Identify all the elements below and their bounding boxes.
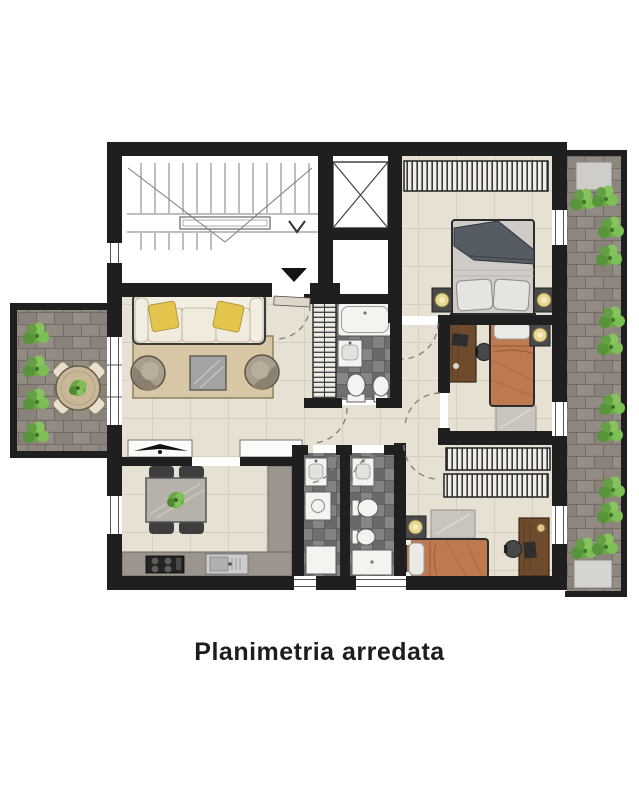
bathroom-sink <box>338 340 362 367</box>
shower-tray <box>352 550 392 575</box>
desk <box>448 322 476 382</box>
window <box>552 402 567 436</box>
nightstand <box>432 288 452 312</box>
wardrobe <box>404 161 548 191</box>
sofa <box>133 294 265 344</box>
left-terrace <box>10 303 122 458</box>
dining-chair <box>149 521 174 534</box>
floor-plan-page: Planimetria arredata <box>0 0 639 800</box>
laundry-cabinet <box>306 546 336 574</box>
stair-direction-arrow <box>289 221 305 232</box>
coffee-table <box>190 356 226 390</box>
elevator <box>333 162 388 228</box>
sofa-pillow <box>148 301 179 332</box>
toilet <box>347 374 365 402</box>
desk <box>519 518 549 576</box>
tv-console <box>128 440 192 457</box>
wardrobe <box>444 474 548 497</box>
nightstand <box>405 516 426 539</box>
dining-chair <box>179 466 204 479</box>
storage-box <box>574 560 612 588</box>
nightstand <box>534 288 554 312</box>
window <box>107 243 122 263</box>
single-bed <box>488 316 536 406</box>
stove <box>146 556 184 573</box>
sofa-pillow <box>212 301 244 333</box>
dining-chair <box>179 521 204 534</box>
window <box>552 506 567 544</box>
double-bed <box>450 220 536 319</box>
toilet <box>352 499 378 517</box>
window-living-terrace <box>107 337 122 425</box>
window <box>356 576 406 590</box>
window <box>294 576 316 590</box>
single-bed <box>402 538 488 579</box>
dining-chair <box>149 466 174 479</box>
laptop <box>451 333 469 347</box>
corridor-nook-floor <box>402 325 440 445</box>
plan-caption: Planimetria arredata <box>0 638 639 667</box>
nightstand <box>530 324 550 346</box>
armchair <box>245 355 279 389</box>
washing-machine <box>305 492 331 520</box>
window <box>552 210 567 245</box>
bidet <box>352 529 375 545</box>
right-terrace <box>565 150 627 597</box>
bed-pillow <box>494 323 530 339</box>
wardrobe <box>446 448 550 470</box>
window <box>107 496 122 534</box>
kitchen-sink <box>206 554 248 574</box>
bed-pillow <box>456 279 493 311</box>
terrace-table-set <box>51 360 106 415</box>
armchair <box>131 356 165 390</box>
floor-plan-image <box>0 0 639 800</box>
bathtub <box>338 303 392 336</box>
bed-pillow <box>409 543 424 575</box>
laptop <box>523 541 537 558</box>
entry-door-leaf <box>274 296 310 307</box>
bathroom2-sink <box>352 458 374 486</box>
entrance-arrow-icon <box>281 268 307 282</box>
desk-chair <box>505 541 522 558</box>
stairs <box>127 163 318 250</box>
bed-pillow <box>493 279 530 311</box>
